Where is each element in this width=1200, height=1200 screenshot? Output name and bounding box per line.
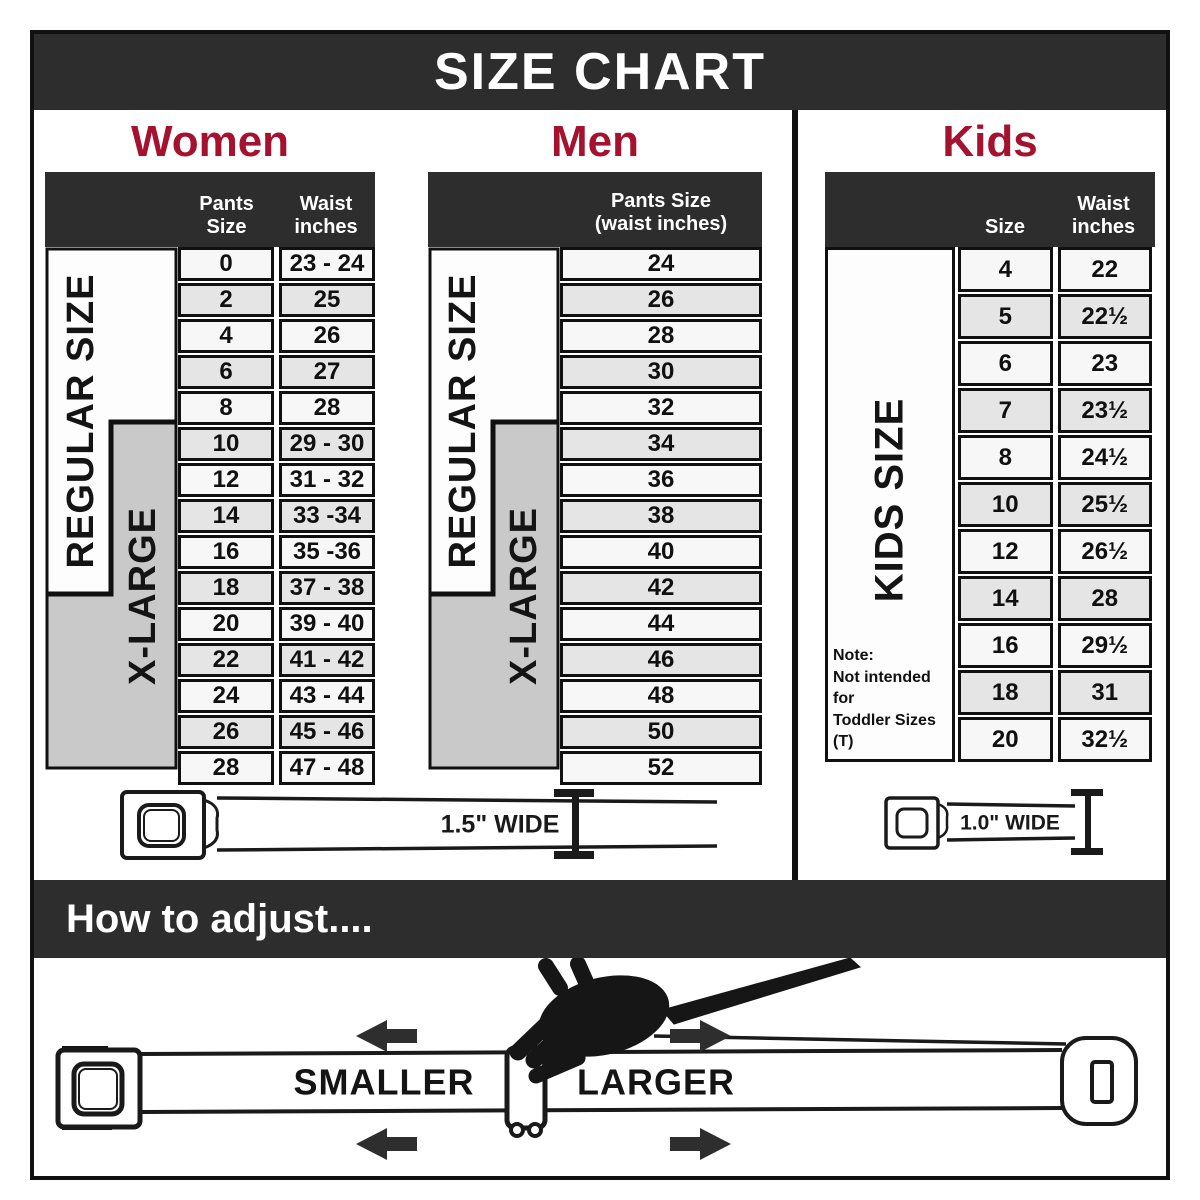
table-cell: 28: [279, 391, 375, 425]
kids-note: Note: Not intended for Toddler Sizes (T): [833, 645, 952, 753]
table-cell: 2: [178, 283, 274, 317]
table-cell: 31: [1058, 670, 1153, 715]
arrow-left-icon: [356, 1020, 417, 1052]
table-row: 50: [560, 715, 762, 749]
table-row: 26: [560, 283, 762, 317]
kids-belt-width-label: 1.0" WIDE: [960, 812, 1060, 835]
table-cell: 4: [958, 247, 1053, 292]
table-cell: 39 - 40: [279, 607, 375, 641]
hand-icon: [518, 963, 677, 1076]
table-cell: 16: [958, 623, 1053, 668]
table-cell: 22: [178, 643, 274, 677]
table-cell: 40: [560, 535, 762, 569]
table-row: 1025½: [958, 482, 1152, 527]
table-cell: 0: [178, 247, 274, 281]
hand-finger: [578, 964, 586, 982]
table-cell: 6: [178, 355, 274, 389]
table-cell: 33 -34: [279, 499, 375, 533]
arrow-right-icon: [670, 1020, 731, 1052]
table-cell: 29 - 30: [279, 427, 375, 461]
arrow-left-icon: [356, 1128, 417, 1160]
table-cell: 7: [958, 388, 1053, 433]
table-row: 426: [178, 319, 375, 353]
table-row: 422: [958, 247, 1152, 292]
kids-col-header-size: Size: [958, 216, 1052, 240]
table-cell: 20: [178, 607, 274, 641]
table-row: 824½: [958, 435, 1152, 480]
table-row: 828: [178, 391, 375, 425]
size-chart-infographic: SIZE CHART Women Men Kids Pants Size Wai…: [0, 0, 1200, 1200]
table-row: 36: [560, 463, 762, 497]
table-cell: 25½: [1058, 482, 1153, 527]
table-cell: 26: [560, 283, 762, 317]
kids-col-header-waist: Waist inches: [1055, 193, 1152, 240]
table-cell: 43 - 44: [279, 679, 375, 713]
table-row: 023 - 24: [178, 247, 375, 281]
larger-label: LARGER: [577, 1062, 735, 1103]
table-row: 24: [560, 247, 762, 281]
kids-heading: Kids: [825, 116, 1155, 168]
table-cell: 18: [178, 571, 274, 605]
width-marker-cap: [554, 789, 594, 797]
table-cell: 27: [279, 355, 375, 389]
men-size-category-graphic: REGULAR SIZE X-LARGE: [428, 247, 560, 770]
kids-note-line: Toddler Sizes (T): [833, 710, 952, 753]
table-cell: 50: [560, 715, 762, 749]
women-size-table: Pants Size Waist inches REGULAR SIZE X-L…: [45, 172, 375, 770]
table-row: 40: [560, 535, 762, 569]
adjust-heading: How to adjust....: [34, 897, 373, 942]
belt-strap: [140, 1108, 1062, 1112]
men-regular-size-label: REGULAR SIZE: [442, 274, 484, 569]
table-row: 1029 - 30: [178, 427, 375, 461]
table-row: 2039 - 40: [178, 607, 375, 641]
table-row: 2443 - 44: [178, 679, 375, 713]
table-cell: 30: [560, 355, 762, 389]
arrow-right-icon: [670, 1128, 731, 1160]
width-marker-cap: [1071, 789, 1103, 796]
table-row: 1629½: [958, 623, 1152, 668]
table-row: 30: [560, 355, 762, 389]
men-x-large-label: X-LARGE: [503, 507, 545, 685]
table-cell: 32: [560, 391, 762, 425]
table-cell: 10: [958, 482, 1053, 527]
table-cell: 23 - 24: [279, 247, 375, 281]
kids-note-line: Note:: [833, 645, 952, 667]
size-tables-section: Women Men Kids Pants Size Waist inches R…: [34, 110, 1166, 880]
width-marker-cap: [554, 851, 594, 859]
table-cell: 28: [560, 319, 762, 353]
table-row: 46: [560, 643, 762, 677]
table-cell: 26½: [1058, 529, 1153, 574]
women-x-large-label: X-LARGE: [122, 507, 164, 685]
table-row: 42: [560, 571, 762, 605]
table-cell: 8: [178, 391, 274, 425]
table-cell: 23½: [1058, 388, 1153, 433]
width-marker-cap: [1071, 848, 1103, 855]
women-regular-size-label: REGULAR SIZE: [60, 274, 102, 569]
kids-size-label: KIDS SIZE: [868, 398, 913, 603]
table-cell: 8: [958, 435, 1053, 480]
table-row: 2645 - 46: [178, 715, 375, 749]
table-row: 1433 -34: [178, 499, 375, 533]
kids-size-category-box: KIDS SIZE Note: Not intended for Toddler…: [825, 247, 955, 762]
table-row: 2032½: [958, 717, 1152, 762]
table-cell: 35 -36: [279, 535, 375, 569]
women-size-category-graphic: REGULAR SIZE X-LARGE: [45, 247, 178, 770]
table-cell: 24: [178, 679, 274, 713]
buckle-button: [897, 809, 927, 837]
chart-frame: SIZE CHART Women Men Kids Pants Size Wai…: [30, 30, 1170, 1180]
table-cell: 37 - 38: [279, 571, 375, 605]
women-heading: Women: [45, 116, 375, 168]
smaller-label: SMALLER: [294, 1062, 475, 1103]
pulled-strap: [662, 958, 860, 1024]
belt-tip-slot: [1092, 1062, 1112, 1102]
table-cell: 4: [178, 319, 274, 353]
adult-belt-width-label: 1.5" WIDE: [441, 811, 560, 839]
women-col-header-waist: Waist inches: [277, 193, 375, 240]
table-row: 48: [560, 679, 762, 713]
table-cell: 16: [178, 535, 274, 569]
title-bar: SIZE CHART: [34, 34, 1166, 110]
table-cell: 31 - 32: [279, 463, 375, 497]
men-table-rows: 242628303234363840424446485052: [560, 247, 762, 770]
table-cell: 12: [958, 529, 1053, 574]
table-cell: 25: [279, 283, 375, 317]
kids-belt-graphic: 1.0" WIDE: [880, 780, 1115, 868]
table-row: 1635 -36: [178, 535, 375, 569]
width-marker-icon: [1085, 792, 1091, 854]
adjust-diagram: SMALLER LARGER: [34, 958, 1166, 1176]
slider-loop: [529, 1124, 541, 1136]
table-row: 623: [958, 341, 1152, 386]
table-cell: 5: [958, 294, 1053, 339]
women-table-rows: 023 - 242254266278281029 - 301231 - 3214…: [178, 247, 375, 770]
men-col-header-pants-size: Pants Size (waist inches): [560, 190, 762, 237]
table-row: 32: [560, 391, 762, 425]
belt-strap: [217, 798, 717, 802]
belt-strap: [947, 838, 1075, 840]
table-row: 1226½: [958, 529, 1152, 574]
table-cell: 46: [560, 643, 762, 677]
table-cell: 22½: [1058, 294, 1153, 339]
table-cell: 36: [560, 463, 762, 497]
table-cell: 23: [1058, 341, 1153, 386]
belt-strap: [217, 846, 717, 850]
table-cell: 14: [958, 576, 1053, 621]
buckle-latch: [204, 800, 218, 848]
table-row: 2241 - 42: [178, 643, 375, 677]
table-row: 1231 - 32: [178, 463, 375, 497]
table-row: 38: [560, 499, 762, 533]
table-cell: 24: [560, 247, 762, 281]
table-row: 44: [560, 607, 762, 641]
belt-strap: [947, 804, 1075, 806]
women-col-header-pants-size: Pants Size: [178, 193, 275, 240]
table-cell: 18: [958, 670, 1053, 715]
page-title: SIZE CHART: [434, 42, 766, 102]
table-cell: 28: [1058, 576, 1153, 621]
table-cell: 6: [958, 341, 1053, 386]
hand-finger: [546, 966, 560, 988]
table-row: 723½: [958, 388, 1152, 433]
table-cell: 29½: [1058, 623, 1153, 668]
table-cell: 34: [560, 427, 762, 461]
table-row: 1831: [958, 670, 1152, 715]
adjust-section-bar: How to adjust....: [34, 880, 1166, 958]
kids-table-header: Size Waist inches: [825, 172, 1155, 247]
table-cell: 45 - 46: [279, 715, 375, 749]
table-cell: 26: [178, 715, 274, 749]
slider-loop: [511, 1124, 523, 1136]
kids-size-table: Size Waist inches KIDS SIZE Note: Not in…: [825, 172, 1155, 762]
adjust-diagram-graphic: SMALLER LARGER: [34, 958, 1166, 1176]
table-row: 34: [560, 427, 762, 461]
section-divider: [792, 110, 798, 880]
table-cell: 41 - 42: [279, 643, 375, 677]
table-row: 627: [178, 355, 375, 389]
table-row: 1837 - 38: [178, 571, 375, 605]
table-cell: 12: [178, 463, 274, 497]
table-row: 1428: [958, 576, 1152, 621]
width-marker-icon: [572, 792, 579, 856]
men-size-table: Pants Size (waist inches) REGULAR SIZE X…: [428, 172, 762, 770]
table-cell: 14: [178, 499, 274, 533]
table-row: 522½: [958, 294, 1152, 339]
women-table-header: Pants Size Waist inches: [45, 172, 375, 247]
table-cell: 48: [560, 679, 762, 713]
table-cell: 42: [560, 571, 762, 605]
men-table-header: Pants Size (waist inches): [428, 172, 762, 247]
table-cell: 20: [958, 717, 1053, 762]
table-row: 225: [178, 283, 375, 317]
adult-belt-graphic: 1.5" WIDE: [120, 780, 760, 868]
men-heading: Men: [428, 116, 762, 168]
table-cell: 10: [178, 427, 274, 461]
table-cell: 32½: [1058, 717, 1153, 762]
table-cell: 26: [279, 319, 375, 353]
table-cell: 38: [560, 499, 762, 533]
kids-note-line: Not intended for: [833, 667, 952, 710]
table-cell: 44: [560, 607, 762, 641]
table-row: 28: [560, 319, 762, 353]
table-cell: 22: [1058, 247, 1153, 292]
kids-table-rows: 422522½623723½824½1025½1226½14281629½183…: [958, 247, 1152, 762]
table-cell: 24½: [1058, 435, 1153, 480]
